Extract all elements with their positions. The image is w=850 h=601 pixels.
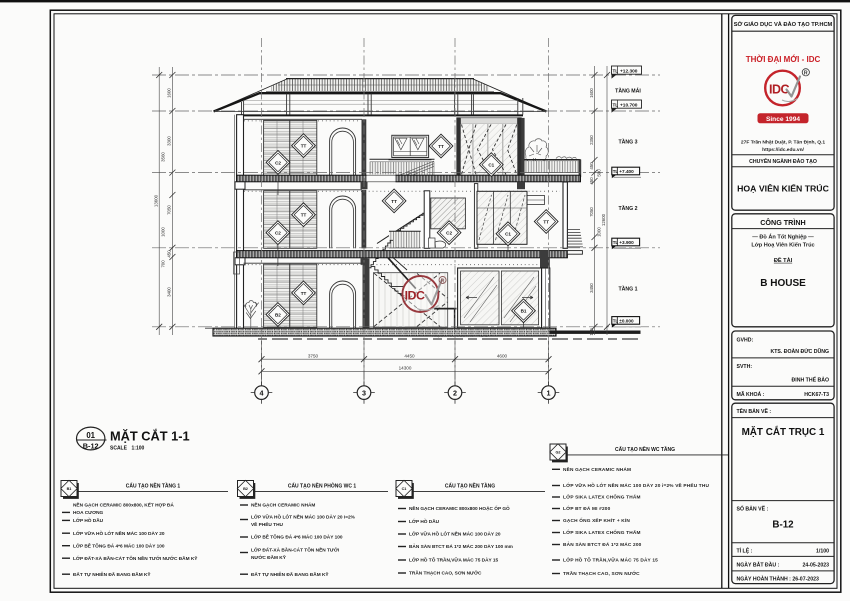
svg-text:NỀN GẠCH CERAMIC 800x800 HOẶC: NỀN GẠCH CERAMIC 800x800 HOẶC ỐP GỖ — [409, 505, 510, 512]
svg-text:1/100: 1/100 — [816, 549, 829, 555]
svg-text:3750: 3750 — [308, 353, 319, 358]
svg-text:3560: 3560 — [160, 152, 165, 162]
svg-text:3450: 3450 — [589, 283, 594, 293]
svg-text:12600: 12600 — [601, 213, 606, 226]
svg-text:MÃ KHOÁ :: MÃ KHOÁ : — [737, 391, 765, 398]
svg-text:700: 700 — [160, 260, 165, 268]
svg-text:24-05-2023: 24-05-2023 — [802, 563, 829, 569]
svg-text:4: 4 — [260, 388, 264, 397]
svg-text:1000: 1000 — [160, 227, 165, 237]
svg-text:3: 3 — [362, 388, 366, 397]
svg-text:TẦNG 3: TẦNG 3 — [618, 139, 637, 146]
svg-text:3400: 3400 — [167, 287, 172, 297]
svg-text:ĐỀ TÀI: ĐỀ TÀI — [774, 257, 793, 264]
svg-text:C1: C1 — [402, 487, 407, 491]
svg-text:TÊN BẢN VẼ :: TÊN BẢN VẼ : — [737, 407, 772, 415]
svg-text:TT: TT — [301, 144, 307, 149]
svg-text:SVTH:: SVTH: — [737, 364, 753, 370]
svg-text:+10.700: +10.700 — [620, 102, 638, 108]
svg-text:TT: TT — [301, 291, 307, 296]
svg-text:450: 450 — [167, 250, 172, 258]
svg-text:TẦNG 2: TẦNG 2 — [618, 205, 637, 212]
svg-text:Lớp Hoạ Viên Kiến Trúc: Lớp Hoạ Viên Kiến Trúc — [751, 242, 814, 249]
svg-text:IDC: IDC — [405, 288, 425, 302]
svg-text:500: 500 — [597, 169, 602, 177]
svg-text:TẦNG MÁI: TẦNG MÁI — [615, 88, 641, 95]
svg-text:B2: B2 — [275, 312, 281, 317]
svg-text:TT: TT — [391, 199, 397, 204]
svg-text:ĐINH THẾ BẢO: ĐINH THẾ BẢO — [792, 377, 829, 384]
svg-text:+3.900: +3.900 — [619, 240, 634, 245]
svg-text:C2: C2 — [275, 160, 281, 165]
svg-text:2: 2 — [453, 388, 457, 397]
svg-text:C1: C1 — [488, 163, 494, 168]
svg-text:HOA CƯƠNG: HOA CƯƠNG — [73, 510, 104, 516]
svg-text:+7.400: +7.400 — [619, 169, 634, 174]
svg-text:±0.000: ±0.000 — [619, 319, 634, 324]
svg-text:GVHD:: GVHD: — [737, 337, 754, 343]
svg-text:MẶT CẮT TRỤC 1: MẶT CẮT TRỤC 1 — [742, 427, 825, 438]
svg-text:450: 450 — [589, 177, 594, 185]
svg-text:— Đồ Án Tốt Nghiệp —: — Đồ Án Tốt Nghiệp — — [752, 233, 814, 240]
svg-text:450: 450 — [589, 162, 594, 170]
svg-text:2350: 2350 — [589, 135, 594, 145]
svg-text:BẢN SÀN BTCT ĐÁ 1*2 MÁC 200: BẢN SÀN BTCT ĐÁ 1*2 MÁC 200 — [563, 541, 642, 548]
svg-text:HCK67-T3: HCK67-T3 — [804, 392, 829, 398]
svg-text:4600: 4600 — [497, 353, 508, 358]
svg-text:NGÀY HOÀN THÀNH : 26-07-2023: NGÀY HOÀN THÀNH : 26-07-2023 — [737, 575, 819, 582]
svg-text:B2: B2 — [243, 487, 248, 491]
svg-text:R: R — [804, 71, 808, 77]
svg-text:3300: 3300 — [167, 136, 172, 146]
svg-text:27F Trần Nhật Duật, P. Tân Địn: 27F Trần Nhật Duật, P. Tân Định, Q.1 — [741, 140, 825, 146]
svg-text:CẤU TẠO NỀN TẦNG 1: CẤU TẠO NỀN TẦNG 1 — [126, 482, 181, 489]
svg-text:NỀN GẠCH CERAMIC NHÁM: NỀN GẠCH CERAMIC NHÁM — [563, 466, 631, 473]
svg-text:B1: B1 — [521, 309, 527, 314]
svg-text:1: 1 — [547, 388, 551, 397]
svg-text:KTS. ĐOÀN ĐỨC DŨNG: KTS. ĐOÀN ĐỨC DŨNG — [771, 348, 829, 355]
svg-text:CẤU TẠO NỀN WC TẦNG: CẤU TẠO NỀN WC TẦNG — [615, 446, 675, 453]
svg-text:C1: C1 — [505, 232, 511, 237]
svg-text:TL: TL — [613, 169, 619, 174]
svg-text:Since 1994: Since 1994 — [766, 116, 800, 123]
svg-text:13600: 13600 — [153, 194, 158, 207]
svg-text:+12.300: +12.300 — [620, 68, 638, 74]
svg-text:G2: G2 — [555, 451, 560, 455]
svg-text:B1: B1 — [67, 487, 72, 491]
svg-text:B-12: B-12 — [772, 520, 794, 531]
svg-text:C2: C2 — [446, 231, 452, 236]
svg-text:B HOUSE: B HOUSE — [760, 278, 806, 289]
svg-text:R: R — [441, 278, 445, 284]
svg-text:7050: 7050 — [589, 207, 594, 217]
svg-text:NỀN GẠCH CERAMIC NHÁM: NỀN GẠCH CERAMIC NHÁM — [251, 502, 315, 509]
svg-text:THỜI ĐẠI MỚI - IDC: THỜI ĐẠI MỚI - IDC — [746, 55, 821, 64]
svg-text:SỐ BẢN VẼ :: SỐ BẢN VẼ : — [737, 505, 769, 512]
svg-text:TT: TT — [543, 219, 549, 224]
svg-text:1000: 1000 — [597, 227, 602, 237]
svg-text:7050: 7050 — [167, 205, 172, 215]
svg-text:MẶT CẮT 1-1: MẶT CẮT 1-1 — [110, 428, 190, 443]
svg-text:CẤU TẠO NỀN PHÒNG WC 1: CẤU TẠO NỀN PHÒNG WC 1 — [288, 481, 357, 489]
svg-text:1600: 1600 — [589, 88, 594, 98]
svg-text:100: 100 — [589, 328, 594, 336]
svg-text:C2: C2 — [275, 231, 281, 236]
svg-text:NGÀY BẮT ĐẦU :: NGÀY BẮT ĐẦU : — [737, 561, 780, 569]
svg-text:TL: TL — [613, 68, 619, 73]
svg-text:NỀN GẠCH CERAMIC 800x800, KẾT: NỀN GẠCH CERAMIC 800x800, KẾT HỢP ĐÁ — [73, 502, 174, 509]
svg-text:BẢN SÀN BTCT ĐÁ 1*2 MÁC 200 DÀ: BẢN SÀN BTCT ĐÁ 1*2 MÁC 200 DÀY 100 mm — [409, 543, 513, 550]
svg-text:https://idc.edu.vn/: https://idc.edu.vn/ — [762, 147, 804, 153]
svg-text:VỀ PHẾU THU: VỀ PHẾU THU — [251, 521, 284, 528]
svg-text:CÔNG TRÌNH: CÔNG TRÌNH — [760, 218, 806, 227]
svg-text:CẤU TẠO NỀN TẦNG: CẤU TẠO NỀN TẦNG — [445, 482, 495, 489]
svg-text:SỞ GIÁO DỤC VÀ ĐÀO TẠO TP.HCM: SỞ GIÁO DỤC VÀ ĐÀO TẠO TP.HCM — [734, 21, 833, 28]
svg-text:14300: 14300 — [399, 366, 412, 371]
svg-text:01: 01 — [86, 431, 95, 440]
svg-text:TT: TT — [438, 144, 444, 149]
svg-text:TL: TL — [613, 102, 619, 107]
svg-text:TT: TT — [301, 213, 307, 218]
svg-text:TỈ LỆ :: TỈ LỆ : — [737, 547, 753, 555]
svg-text:1:100: 1:100 — [132, 445, 145, 451]
svg-text:TẦNG 1: TẦNG 1 — [618, 285, 637, 292]
svg-text:4450: 4450 — [404, 353, 415, 358]
svg-text:CHUYÊN NGÀNH ĐÀO TẠO: CHUYÊN NGÀNH ĐÀO TẠO — [749, 157, 817, 165]
svg-text:1600: 1600 — [167, 88, 172, 98]
svg-text:B-12: B-12 — [83, 442, 99, 451]
svg-text:TL: TL — [613, 240, 619, 245]
svg-text:SCALE: SCALE — [110, 445, 128, 451]
svg-text:TL: TL — [613, 319, 619, 324]
svg-text:HOẠ VIÊN KIẾN TRÚC: HOẠ VIÊN KIẾN TRÚC — [737, 183, 829, 194]
